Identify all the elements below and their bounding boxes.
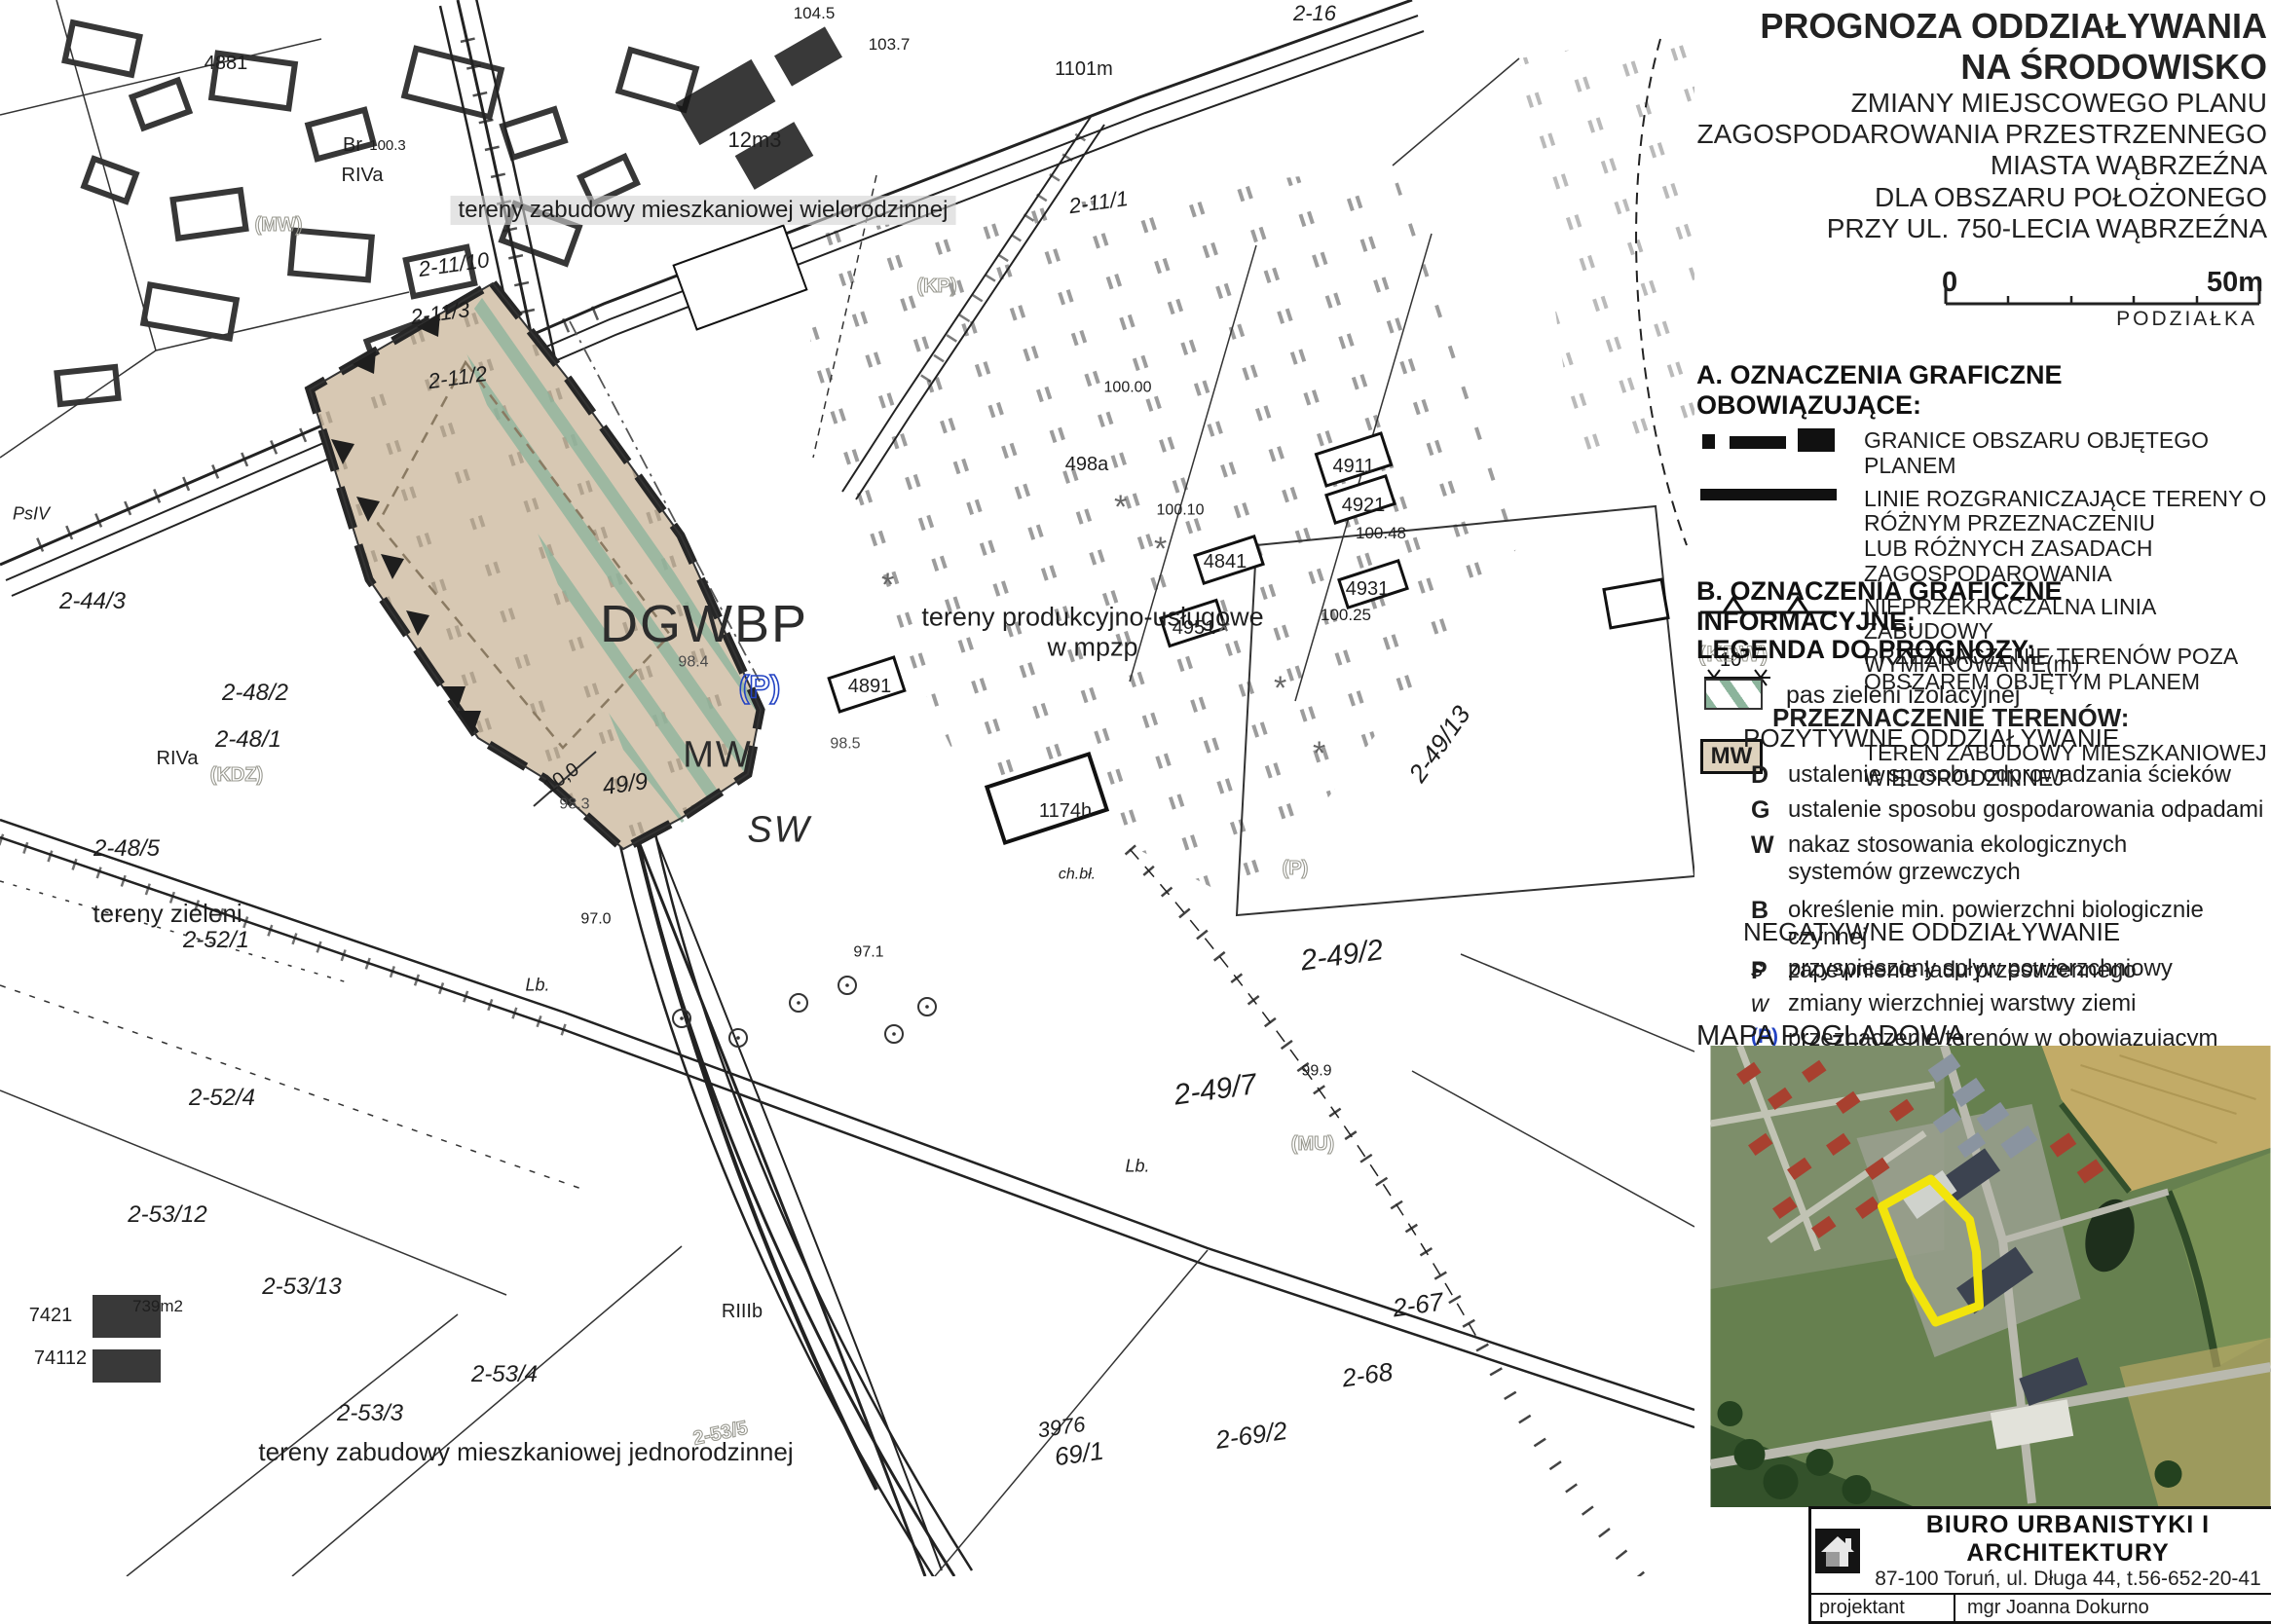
negative-item: s przyspieszony spływ powierzchniowy — [1751, 955, 2271, 983]
svg-text:*: * — [881, 567, 894, 604]
green-belt-swatch — [1704, 679, 1763, 710]
footer-designer-row: projektant mgr Joanna Dokurno — [1811, 1595, 2271, 1621]
legend-row-dividing-lines: LINIE ROZGRANICZAJĄCE TERENY O RÓŻNYM PR… — [1696, 485, 2271, 587]
footer-firm-row: BIURO URBANISTYKI I ARCHITEKTURY 87-100 … — [1811, 1509, 2271, 1595]
plan-boundary-icon — [1696, 426, 1864, 454]
title-line: PROGNOZA ODDZIAŁYWANIA — [1697, 6, 2267, 47]
title-line: ZAGOSPODAROWANIA PRZESTRZENNEGO — [1697, 119, 2267, 150]
title-line: NA ŚRODOWISKO — [1697, 47, 2267, 88]
positive-item: W nakaz stosowania ekologicznych systemó… — [1751, 831, 2271, 885]
section-b-heading: B. OZNACZENIA GRAFICZNE INFORMACYJNE: — [1696, 576, 2271, 637]
page-title: PROGNOZA ODDZIAŁYWANIA NA ŚRODOWISKO ZMI… — [1697, 6, 2267, 245]
title-line: DLA OBSZARU POŁOŻONEGO — [1697, 182, 2267, 213]
title-line: PRZY UL. 750-LECIA WĄBRZEŹNA — [1697, 213, 2267, 244]
section-a-heading: A. OZNACZENIA GRAFICZNE OBOWIĄZUJĄCE: — [1696, 360, 2271, 421]
svg-text:*: * — [1274, 670, 1286, 707]
legend-row-green-belt: pas zieleni izolacyjnej — [1696, 679, 2271, 710]
svg-text:*: * — [1154, 531, 1167, 568]
firm-address: 87-100 Toruń, ul. Długa 44, t.56-652-20-… — [1868, 1568, 2268, 1591]
footer-titleblock: BIURO URBANISTYKI I ARCHITEKTURY 87-100 … — [1808, 1506, 2271, 1624]
title-line: ZMIANY MIEJSCOWEGO PLANU — [1697, 88, 2267, 119]
legend-row-boundary: GRANICE OBSZARU OBJĘTEGO PLANEM — [1696, 426, 2271, 479]
overview-aerial-map — [1710, 1046, 2271, 1507]
positive-heading: POZYTYWNE ODDZIAŁYWANIE — [1743, 723, 2271, 754]
scale-caption: PODZIAŁKA — [2116, 308, 2257, 331]
firm-logo-house-icon — [1815, 1529, 1860, 1573]
svg-text:*: * — [1114, 489, 1127, 526]
positive-item: G ustalenie sposobu gospodarowania odpad… — [1751, 796, 2271, 825]
svg-text:*: * — [1217, 613, 1230, 650]
dividing-line-icon — [1696, 485, 1864, 504]
svg-text:*: * — [1313, 735, 1325, 772]
aerial-photo — [1710, 1046, 2271, 1507]
title-line: MIASTA WĄBRZEŹNA — [1697, 150, 2267, 181]
legend-panel: PROGNOZA ODDZIAŁYWANIA NA ŚRODOWISKO ZMI… — [1696, 0, 2271, 1576]
designer-role-label: projektant — [1811, 1595, 1955, 1621]
positive-item: D ustalenie sposobu odprowadzania ściekó… — [1751, 761, 2271, 790]
designer-name: mgr Joanna Dokurno — [1955, 1595, 2271, 1621]
negative-item: w zmiany wierzchniej warstwy ziemi — [1751, 990, 2271, 1018]
cadastral-map: ** ** ** tereny zabudowy mieszkaniowej w… — [0, 0, 1694, 1576]
negative-heading: NEGATYWNE ODDZIAŁYWANIE — [1743, 917, 2271, 947]
forecast-legend-heading: LEGENDA DO PROGNOZY: — [1696, 635, 2271, 665]
map-linework: ** ** ** — [0, 0, 1694, 1576]
firm-name: BIURO URBANISTYKI I ARCHITEKTURY — [1868, 1511, 2268, 1568]
scale-bar: 0 50m PODZIAŁKA — [1942, 267, 2263, 329]
